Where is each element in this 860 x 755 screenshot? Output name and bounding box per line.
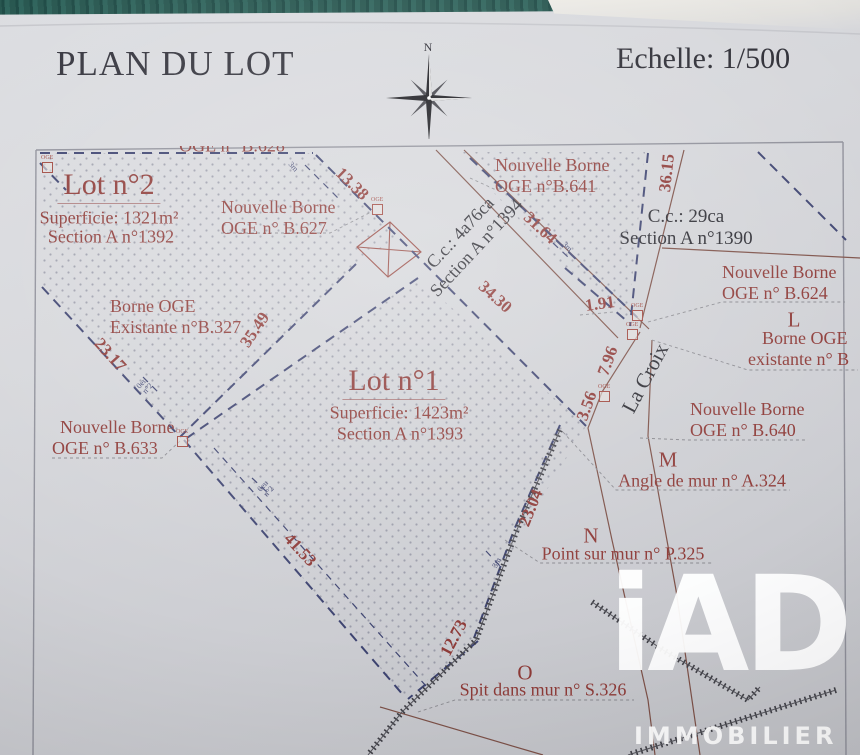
- scanned-plan-photo: PLAN DU LOT Echelle: 1/500 N: [0, 0, 860, 755]
- oge-borne-marker: OGE: [177, 436, 188, 447]
- iad-immobilier-logo: iAD IMMOBILIER: [598, 560, 860, 755]
- dimension-13-38: 13.38: [331, 164, 372, 205]
- oge-borne-marker: OGE: [627, 329, 638, 340]
- dimension-34-30: 34.30: [474, 277, 516, 317]
- borne-b628-label: OGE n° B.628: [179, 146, 285, 157]
- oge-borne-marker: OGE: [372, 204, 383, 215]
- dimension-35-49: 35.49: [236, 309, 274, 352]
- dimension-41-53: 41.53: [280, 529, 321, 571]
- tick-label-2: 0eun°2: [256, 479, 276, 498]
- dimension-7-96: 7.96: [594, 344, 623, 379]
- borne-b327-label: Borne OGEExistante n°B.327: [110, 296, 241, 338]
- lot2-area: Superficie: 1321m²: [40, 208, 179, 229]
- lot2-title: Lot n°2: [57, 168, 160, 204]
- paper-fold-line: [0, 22, 860, 34]
- oge-borne-marker: OGE: [599, 391, 610, 402]
- iad-subtitle-text: IMMOBILIER: [634, 722, 837, 750]
- dimension-36-15: 36.15: [655, 153, 679, 193]
- dimension-23-04: 23.04: [515, 487, 548, 530]
- parcel-1390-label: C.c.: 29caSection A n°1390: [619, 206, 752, 250]
- borne-b633-label: Nouvelle BorneOGE n° B.633: [52, 417, 174, 459]
- lot2-section: Section A n°1392: [48, 227, 174, 248]
- mark-3m-3: 3m: [491, 557, 503, 570]
- dimension-31-64: 31.64: [519, 208, 561, 249]
- angle-mur-label: Angle de mur n° A.324: [618, 471, 786, 492]
- dimension-3-56: 3.56: [573, 389, 602, 424]
- borne-b640-label: Nouvelle BorneOGE n° B.640: [690, 399, 804, 441]
- street-name-la-croix: La Croix: [618, 340, 673, 417]
- borne-b627-label: Nouvelle BorneOGE n° B.627: [221, 197, 335, 239]
- lot1-section: Section A n°1393: [337, 424, 463, 445]
- mark-3m-2: 3m: [561, 241, 574, 254]
- dimension-1-91: 1.91: [584, 292, 616, 316]
- tick-label-1: 0eun°2: [135, 376, 155, 395]
- borne-b624-label: Nouvelle BorneOGE n° B.624: [722, 262, 836, 304]
- lot1-area: Superficie: 1423m²: [330, 403, 469, 424]
- oge-borne-marker: OGE: [42, 162, 53, 173]
- iad-brand-text: iAD: [608, 548, 847, 702]
- dimension-23-17: 23.17: [90, 334, 130, 376]
- dimension-12-73: 12.73: [436, 616, 472, 659]
- mark-3m-1: 3m: [287, 161, 300, 174]
- borne-existante-label: Borne OGEexistante n° B: [748, 328, 849, 370]
- borne-b641-label: Nouvelle BorneOGE n°B.641: [495, 155, 609, 197]
- parcel-1394-label: C.c.: 4a76caSection A n°1394: [409, 179, 527, 301]
- oge-borne-marker: OGE: [632, 310, 643, 321]
- lot1-title: Lot n°1: [342, 364, 445, 400]
- point-m-label: M: [659, 448, 678, 473]
